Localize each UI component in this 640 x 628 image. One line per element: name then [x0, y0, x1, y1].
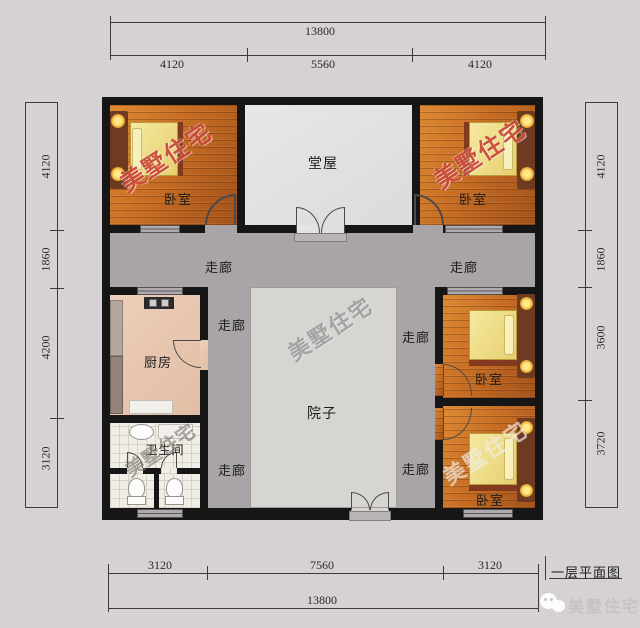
dim-label-left-seg4: 3120	[40, 429, 53, 489]
dim-label-right-seg1: 4120	[595, 137, 608, 197]
dim-label-top-total: 13800	[290, 25, 350, 38]
room-label-hall: 堂屋	[293, 153, 353, 173]
dim-tick	[585, 507, 618, 508]
room-label-corridor: 走廊	[450, 257, 478, 276]
dim-ext-line	[25, 102, 26, 508]
room-label-bedroom-bottom-right: 卧室	[462, 490, 518, 509]
dim-line-bottom-total	[108, 608, 538, 609]
dim-label-bottom-seg3: 3120	[460, 559, 520, 572]
dim-tick	[25, 102, 58, 103]
dim-label-top-seg3: 4120	[450, 58, 510, 71]
wechat-bubble-small	[552, 600, 565, 612]
window	[140, 225, 180, 233]
dim-tick	[443, 566, 444, 580]
window	[447, 287, 503, 295]
hall-entry-step	[294, 233, 347, 242]
dim-label-bottom-seg2: 7560	[292, 559, 352, 572]
dim-tick	[545, 556, 546, 580]
dim-label-left-seg2: 1860	[40, 230, 53, 290]
room-label-bedroom-top-left: 卧室	[150, 189, 206, 208]
room-label-bedroom-mid-right: 卧室	[461, 369, 517, 388]
dim-tick	[247, 48, 248, 62]
dim-label-bottom-seg1: 3120	[130, 559, 190, 572]
toilet-tank	[165, 496, 184, 505]
bedside-lamp	[520, 297, 533, 310]
toilet	[166, 478, 183, 498]
dim-label-left-seg3: 4200	[40, 318, 53, 378]
door-opening	[435, 364, 443, 396]
kitchen-counter	[110, 300, 123, 356]
dim-tick	[412, 48, 413, 62]
room-label-courtyard: 院子	[292, 403, 352, 423]
gate-threshold	[349, 511, 391, 521]
dim-ext-line	[617, 102, 618, 508]
dim-label-right-seg3: 3600	[595, 308, 608, 368]
caption-underline	[549, 578, 622, 579]
bedside-lamp	[520, 360, 533, 373]
wechat-eye	[550, 598, 553, 601]
door-opening	[205, 225, 237, 233]
dim-tick	[25, 507, 58, 508]
dim-label-right-seg4: 3720	[595, 414, 608, 474]
room-label-corridor: 走廊	[218, 315, 246, 334]
dim-line-left	[57, 102, 58, 508]
dim-tick	[585, 102, 618, 103]
room-label-corridor: 走廊	[402, 327, 430, 346]
dim-label-left-seg1: 4120	[40, 137, 53, 197]
bedside-lamp	[111, 114, 125, 128]
dim-tick	[50, 418, 64, 419]
window	[463, 509, 513, 518]
bed-footboard	[469, 360, 517, 366]
window	[137, 509, 183, 518]
window	[137, 287, 183, 295]
door-opening	[413, 225, 443, 233]
dim-tick	[578, 287, 592, 288]
dim-line-bottom-segments	[108, 573, 538, 574]
dim-label-right-seg2: 1860	[595, 230, 608, 290]
dim-line-top-segments	[110, 55, 546, 56]
door-opening	[435, 408, 443, 440]
door-opening	[200, 340, 208, 370]
dim-tick	[578, 230, 592, 231]
dim-line-right	[585, 102, 586, 508]
bed-pillow	[504, 315, 514, 355]
floor-plan-page: 13800 4120 5560 4120 4120 1860 4200 3120…	[0, 0, 640, 628]
dim-label-top-seg2: 5560	[293, 58, 353, 71]
dim-tick	[578, 400, 592, 401]
brand-logo-text: 美墅住宅	[568, 593, 640, 617]
sink	[129, 424, 154, 440]
door-opening	[161, 468, 177, 474]
dim-tick	[207, 566, 208, 580]
dim-line-top-total	[110, 22, 546, 23]
dim-ext-line	[108, 564, 109, 612]
room-label-bedroom-top-right: 卧室	[445, 189, 501, 208]
room-label-corridor: 走廊	[218, 460, 246, 479]
room-label-corridor: 走廊	[205, 257, 233, 276]
dim-label-bottom-total: 13800	[292, 594, 352, 607]
window	[445, 225, 503, 233]
stove-burner	[161, 299, 169, 307]
toilet-tank	[127, 496, 146, 505]
dim-label-top-seg1: 4120	[142, 58, 202, 71]
bedside-lamp	[520, 484, 533, 497]
stove-burner	[149, 299, 157, 307]
wechat-icon	[538, 591, 566, 615]
stall-divider-wall	[154, 474, 159, 508]
room-label-kitchen: 厨房	[130, 352, 186, 371]
kitchen-cabinet	[129, 400, 173, 414]
kitchen-counter	[110, 356, 123, 414]
bedside-lamp	[520, 167, 534, 181]
wechat-eye	[544, 598, 547, 601]
